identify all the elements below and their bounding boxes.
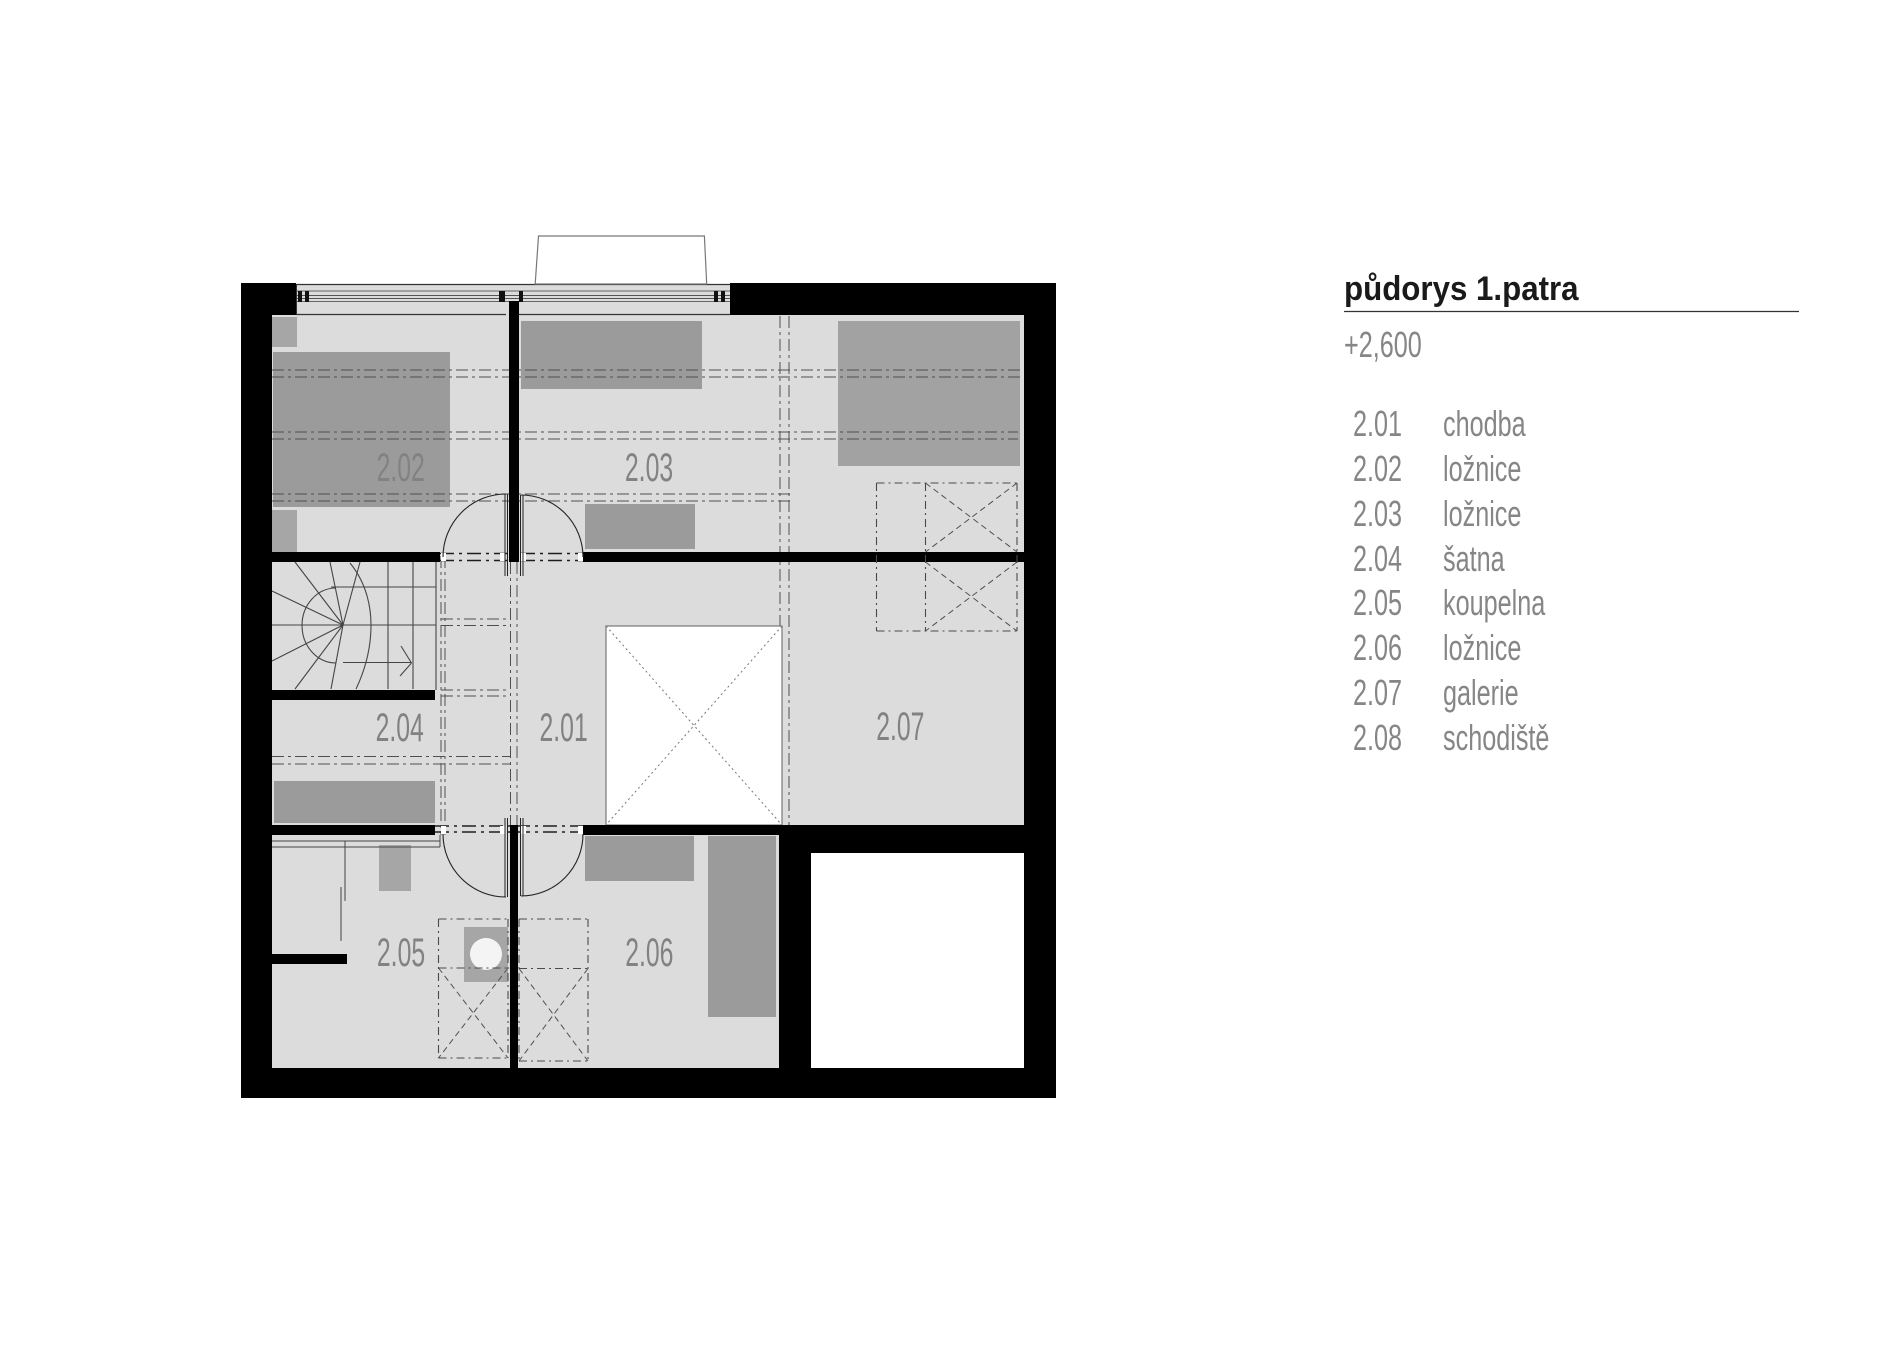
svg-text:půdorys 1.patra: půdorys 1.patra bbox=[1344, 269, 1579, 308]
svg-text:galerie: galerie bbox=[1443, 673, 1519, 714]
svg-text:2.04: 2.04 bbox=[1353, 539, 1402, 580]
svg-text:ložnice: ložnice bbox=[1443, 494, 1521, 535]
svg-text:2.07: 2.07 bbox=[1353, 673, 1402, 714]
svg-text:2.06: 2.06 bbox=[625, 931, 673, 975]
svg-text:2.06: 2.06 bbox=[1353, 628, 1402, 669]
svg-text:2.02: 2.02 bbox=[377, 446, 425, 490]
svg-text:2.05: 2.05 bbox=[377, 931, 425, 975]
svg-text:2.03: 2.03 bbox=[625, 446, 673, 490]
svg-text:schodiště: schodiště bbox=[1443, 718, 1549, 759]
svg-text:2.02: 2.02 bbox=[1353, 449, 1402, 490]
svg-text:šatna: šatna bbox=[1443, 539, 1505, 580]
svg-text:ložnice: ložnice bbox=[1443, 628, 1521, 669]
svg-text:2.05: 2.05 bbox=[1353, 583, 1402, 624]
svg-text:koupelna: koupelna bbox=[1443, 583, 1546, 624]
svg-text:chodba: chodba bbox=[1443, 404, 1526, 445]
svg-text:2.08: 2.08 bbox=[1353, 718, 1402, 759]
svg-text:2.04: 2.04 bbox=[376, 706, 424, 750]
svg-text:ložnice: ložnice bbox=[1443, 449, 1521, 490]
svg-text:2.01: 2.01 bbox=[540, 706, 588, 750]
svg-text:+2,600: +2,600 bbox=[1344, 325, 1422, 366]
svg-text:2.07: 2.07 bbox=[876, 705, 924, 749]
svg-text:2.03: 2.03 bbox=[1353, 494, 1402, 535]
svg-text:2.01: 2.01 bbox=[1353, 404, 1402, 445]
